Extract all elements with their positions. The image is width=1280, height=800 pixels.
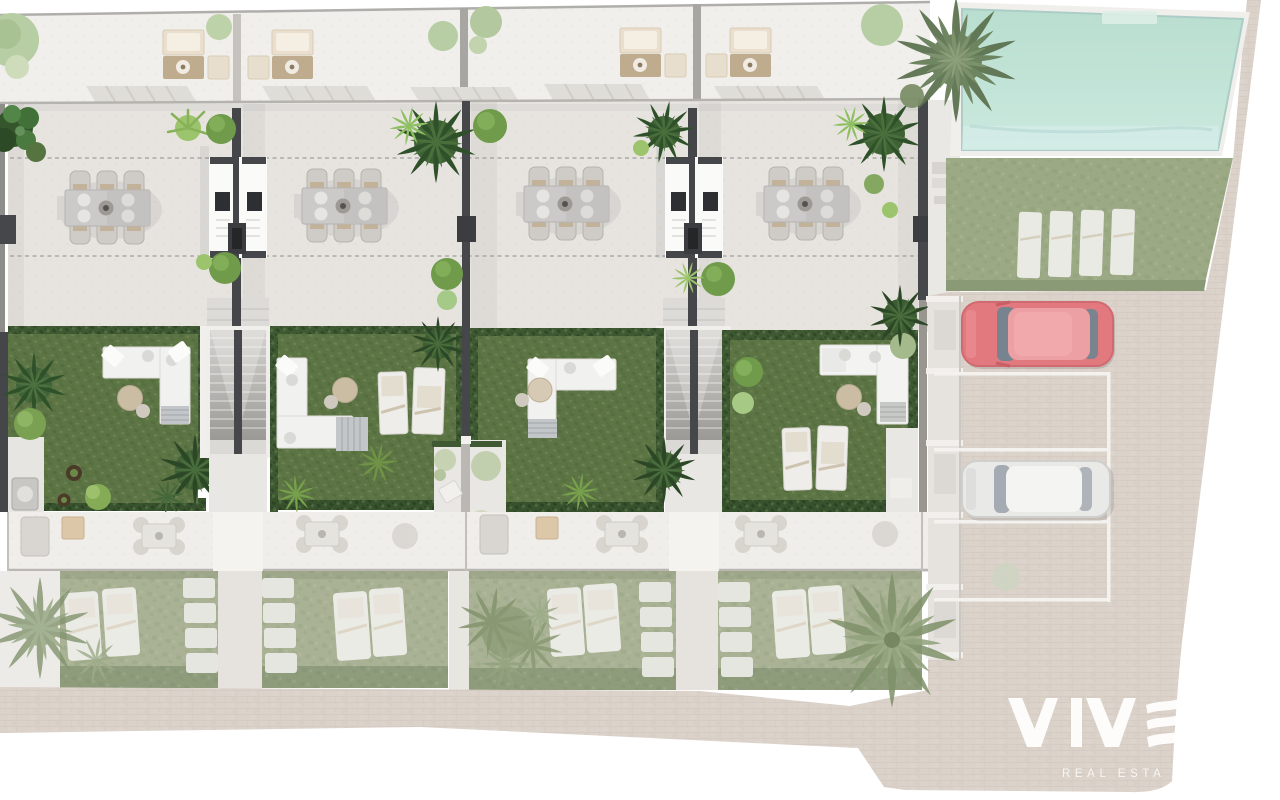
svg-text:REAL ESTA: REAL ESTA [1062,768,1165,780]
